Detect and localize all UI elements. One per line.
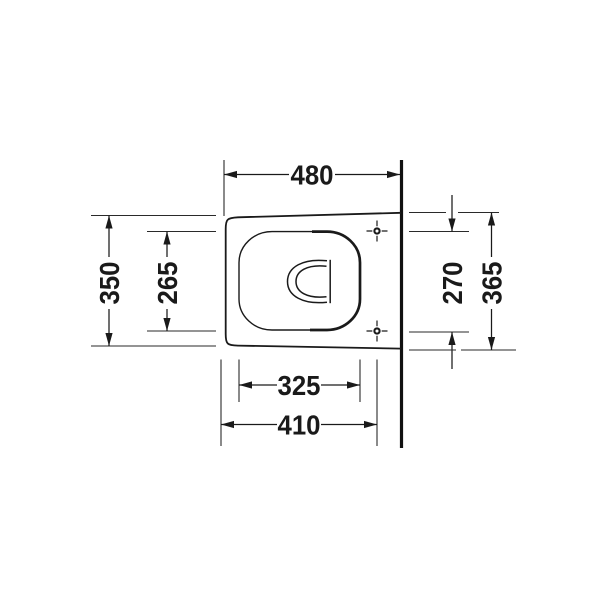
dimension-label-365: 365 — [476, 261, 507, 304]
dimension-label-350: 350 — [94, 262, 125, 305]
dimension-270: 270 — [409, 195, 469, 369]
technical-drawing-canvas: 480 350 265 270 — [0, 0, 600, 600]
seat-outline-shading — [310, 232, 360, 330]
flush-area-outer-curve — [288, 260, 328, 302]
dimension-265: 265 — [147, 232, 216, 332]
seat-outline — [239, 232, 360, 330]
toilet-top-view — [226, 213, 401, 349]
dimension-label-480: 480 — [291, 159, 334, 190]
dimension-480: 480 — [224, 159, 400, 216]
flush-area — [288, 260, 331, 303]
flush-area-inner-curve — [296, 266, 327, 297]
dimension-label-265: 265 — [152, 261, 183, 304]
crosshair-icon-top — [367, 221, 388, 242]
technical-drawing-page: 480 350 265 270 — [0, 0, 600, 600]
dimension-label-325: 325 — [278, 370, 321, 401]
dimension-label-410: 410 — [278, 409, 321, 440]
dimension-label-270: 270 — [437, 262, 468, 305]
dimension-325: 325 — [239, 360, 360, 403]
crosshair-icon-bottom — [367, 321, 388, 342]
